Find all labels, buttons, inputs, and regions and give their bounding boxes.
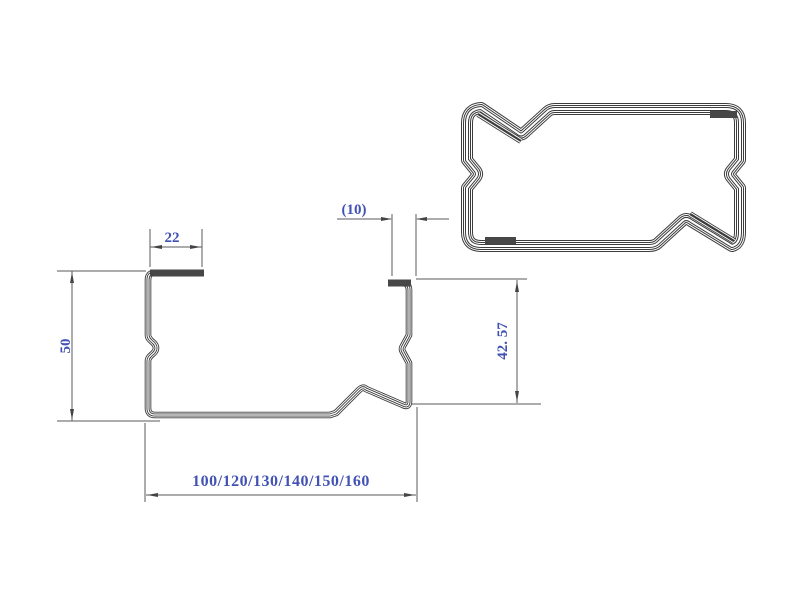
dim-label-right-height: 42. 57 [495,322,511,360]
arrow [151,245,162,249]
main-profile-right-lip-bar [388,280,411,287]
arrow [70,272,74,283]
arrow [416,217,427,221]
dimension-arrows [70,217,519,497]
arrow [515,391,519,402]
arrow [404,493,415,497]
technical-drawing-page: 22 50 (10) 42. 57 100/120/130/140/150/16… [0,0,800,600]
main-profile-top-lip-bar [150,270,204,277]
box-top-right-lip-bar [710,111,737,118]
arrow [147,493,158,497]
arrow [381,217,392,221]
box-bottom-left-lip-bar [485,237,516,245]
dim-label-bottom-width-options: 100/120/130/140/150/160 [192,473,370,490]
main-profile-outline [148,273,409,415]
dim-label-top-lip-width: 22 [165,230,180,246]
arrow [190,245,201,249]
interlocked-profiles-outline [467,108,740,246]
dim-label-web-height: 50 [58,339,74,354]
dim-label-right-lip-width: (10) [342,202,367,218]
technical-drawing-canvas: 22 50 (10) 42. 57 100/120/130/140/150/16… [0,0,800,600]
dimension-lines [57,214,541,502]
arrow [515,281,519,292]
arrow [70,409,74,420]
